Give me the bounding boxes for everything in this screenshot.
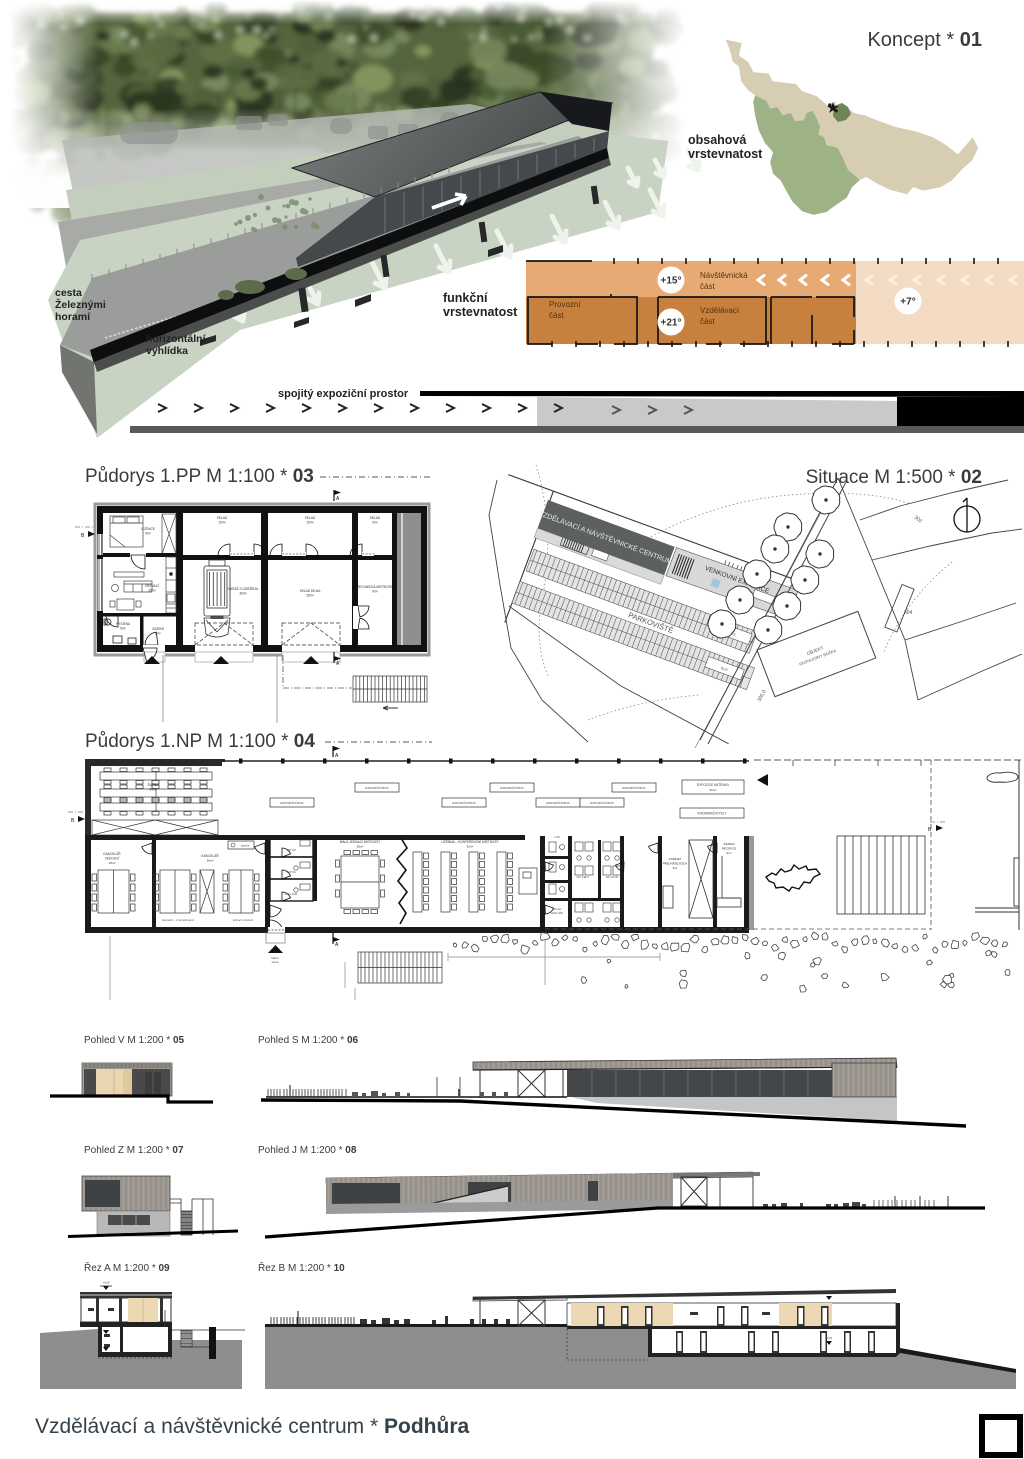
svg-text:horizontální: horizontální xyxy=(146,333,207,345)
svg-text:Pohled S M 1:200 * 06: Pohled S M 1:200 * 06 xyxy=(258,1035,359,1046)
svg-text:UČEBNA – KONFERENČNÍ MÍSTNOST: UČEBNA – KONFERENČNÍ MÍSTNOST xyxy=(441,839,498,844)
svg-text:92m²: 92m² xyxy=(467,845,474,849)
svg-text:MALÁ JEDNACÍ MÍSTNOST: MALÁ JEDNACÍ MÍSTNOST xyxy=(340,840,381,844)
svg-text:Půdorys 1.PP M 1:100 * 03: Půdorys 1.PP M 1:100 * 03 xyxy=(85,466,314,487)
svg-text:LOŽNICE: LOŽNICE xyxy=(141,526,155,531)
svg-text:horamí: horamí xyxy=(55,311,91,323)
svg-text:9m²: 9m² xyxy=(145,532,151,536)
svg-text:302: 302 xyxy=(913,515,923,525)
svg-text:část: část xyxy=(549,311,564,320)
svg-text:funkční: funkční xyxy=(443,291,488,305)
svg-text:PŘEDNÁŠEJÍCÍCH: PŘEDNÁŠEJÍCÍCH xyxy=(663,861,687,866)
svg-text:35m²: 35m² xyxy=(239,592,246,596)
svg-text:WC ŽENY: WC ŽENY xyxy=(577,874,590,879)
svg-text:36m²: 36m² xyxy=(207,859,214,863)
svg-text:vrstevnatost: vrstevnatost xyxy=(443,305,518,319)
svg-text:Provozní: Provozní xyxy=(549,300,581,309)
svg-text:Pohled Z M 1:200 * 07: Pohled Z M 1:200 * 07 xyxy=(84,1145,184,1156)
svg-text:+15°: +15° xyxy=(661,276,682,287)
svg-text:Návštěvnická: Návštěvnická xyxy=(700,271,748,280)
svg-text:EXPOZIČNÍ BOX: EXPOZIČNÍ BOX xyxy=(590,800,613,805)
svg-text:9m²: 9m² xyxy=(372,590,378,594)
svg-text:9m²: 9m² xyxy=(727,851,732,855)
svg-text:EXPOZIČNÍ BOX: EXPOZIČNÍ BOX xyxy=(280,800,303,805)
svg-text:9m²: 9m² xyxy=(673,866,678,870)
svg-text:Situace M 1:500 * 02: Situace M 1:500 * 02 xyxy=(806,467,982,488)
svg-text:obsahová: obsahová xyxy=(688,133,746,147)
svg-text:INFORMAČNÍ PULT: INFORMAČNÍ PULT xyxy=(698,811,727,816)
svg-text:Pohled V M 1:200 * 05: Pohled V M 1:200 * 05 xyxy=(84,1035,185,1046)
svg-text:Koncept * 01: Koncept * 01 xyxy=(867,29,982,51)
svg-text:VENK.NÁB.: VENK.NÁB. xyxy=(551,912,564,915)
svg-text:ZÁZEMÍ: ZÁZEMÍ xyxy=(152,627,164,631)
svg-text:15m²: 15m² xyxy=(218,521,225,525)
svg-text:EXPOZIČNÍ BOX: EXPOZIČNÍ BOX xyxy=(452,800,475,805)
svg-text:-0,75: -0,75 xyxy=(826,1336,832,1340)
svg-text:KANCELÁŘ: KANCELÁŘ xyxy=(103,851,121,856)
svg-text:kopírka: kopírka xyxy=(241,844,250,848)
svg-text:A: A xyxy=(336,496,340,502)
svg-text:SKLAD DÍLNA: SKLAD DÍLNA xyxy=(300,589,322,593)
svg-text:5m²: 5m² xyxy=(120,627,126,631)
svg-text:OBÝVACÍ: OBÝVACÍ xyxy=(145,584,159,588)
svg-text:9m²: 9m² xyxy=(372,521,378,525)
svg-text:43m²: 43m² xyxy=(149,788,156,792)
svg-text:A: A xyxy=(335,753,339,759)
svg-text:vrstevnatost: vrstevnatost xyxy=(688,147,763,161)
svg-text:spojitý expoziční prostor: spojitý expoziční prostor xyxy=(278,388,409,400)
svg-text:ŠATNA: ŠATNA xyxy=(147,782,159,787)
svg-text:EXPOZICE ANTÉNKA: EXPOZICE ANTÉNKA xyxy=(697,782,730,787)
svg-text:+4,25: +4,25 xyxy=(103,1281,110,1285)
svg-text:WC MUŽI: WC MUŽI xyxy=(606,874,618,879)
svg-text:HYG.ZAM: HYG.ZAM xyxy=(285,892,298,896)
svg-text:+7°: +7° xyxy=(900,297,915,308)
svg-text:A: A xyxy=(335,942,339,948)
svg-text:25m²: 25m² xyxy=(148,589,155,593)
svg-text:B: B xyxy=(71,818,75,824)
svg-text:305,0: 305,0 xyxy=(756,689,767,703)
svg-text:HYGIENA: HYGIENA xyxy=(116,622,131,626)
svg-text:EXPOZIČNÍ BOX: EXPOZIČNÍ BOX xyxy=(622,785,645,790)
svg-text:Pohled J M 1:200 * 08: Pohled J M 1:200 * 08 xyxy=(258,1145,357,1156)
svg-text:90m²: 90m² xyxy=(710,788,717,792)
svg-text:GARÁŽ S ÚDRŽBOU: GARÁŽ S ÚDRŽBOU xyxy=(228,586,259,591)
svg-text:SKLAD: SKLAD xyxy=(217,516,228,520)
svg-text:28m²: 28m² xyxy=(357,845,364,849)
svg-text:KABINET: KABINET xyxy=(669,857,682,861)
svg-text:Železnými: Železnými xyxy=(55,298,106,311)
svg-text:18m²: 18m² xyxy=(109,861,116,865)
svg-text:Vzdělávací a návštěvnické cent: Vzdělávací a návštěvnické centrum * Podh… xyxy=(35,1415,470,1438)
svg-text:vstup: vstup xyxy=(272,960,279,964)
svg-text:Řez A M 1:200 * 09: Řez A M 1:200 * 09 xyxy=(84,1261,170,1274)
svg-text:EXPOZIČNÍ BOX: EXPOZIČNÍ BOX xyxy=(546,800,569,805)
svg-text:Půdorys 1.NP M 1:100 * 04: Půdorys 1.NP M 1:100 * 04 xyxy=(85,731,315,752)
svg-text:TECHNICKÁ MÍSTNOST: TECHNICKÁ MÍSTNOST xyxy=(357,585,393,589)
svg-text:SKLAD: SKLAD xyxy=(370,516,381,520)
svg-text:+4,50: +4,50 xyxy=(826,1291,833,1295)
svg-text:+21°: +21° xyxy=(661,318,682,329)
svg-text:35m²: 35m² xyxy=(306,594,313,598)
svg-text:část: část xyxy=(700,282,715,291)
svg-text:kancelář – 2 zaměstnanci: kancelář – 2 zaměstnanci xyxy=(162,918,194,922)
svg-text:SKLAD: SKLAD xyxy=(305,516,316,520)
svg-text:EXPOZIČNÍ BOX: EXPOZIČNÍ BOX xyxy=(365,785,388,790)
svg-text:cesta: cesta xyxy=(55,287,82,299)
svg-text:VEDOUCÍ: VEDOUCÍ xyxy=(105,857,120,861)
svg-text:KANCELÁŘ: KANCELÁŘ xyxy=(201,853,219,858)
svg-text:304: 304 xyxy=(904,610,913,616)
svg-text:EXPOZIČNÍ BOX: EXPOZIČNÍ BOX xyxy=(500,785,523,790)
svg-text:část: část xyxy=(700,317,715,326)
svg-text:B: B xyxy=(81,533,85,539)
svg-text:ŠATNA: ŠATNA xyxy=(286,869,295,874)
svg-text:B: B xyxy=(928,827,932,833)
svg-text:ZÁZEMÍ: ZÁZEMÍ xyxy=(724,842,735,846)
svg-text:15m²: 15m² xyxy=(306,521,313,525)
svg-text:RECEPCE: RECEPCE xyxy=(722,847,737,851)
svg-text:6m²: 6m² xyxy=(155,632,161,636)
svg-text:vyhlídka: vyhlídka xyxy=(146,345,188,357)
svg-text:Vzdělávací: Vzdělávací xyxy=(700,306,740,315)
svg-text:SKLAD: SKLAD xyxy=(553,907,562,911)
svg-text:Řez B M 1:200 * 10: Řez B M 1:200 * 10 xyxy=(258,1261,345,1274)
svg-text:jednací místnost: jednací místnost xyxy=(232,918,254,922)
svg-text:VSTUP: VSTUP xyxy=(286,848,295,852)
